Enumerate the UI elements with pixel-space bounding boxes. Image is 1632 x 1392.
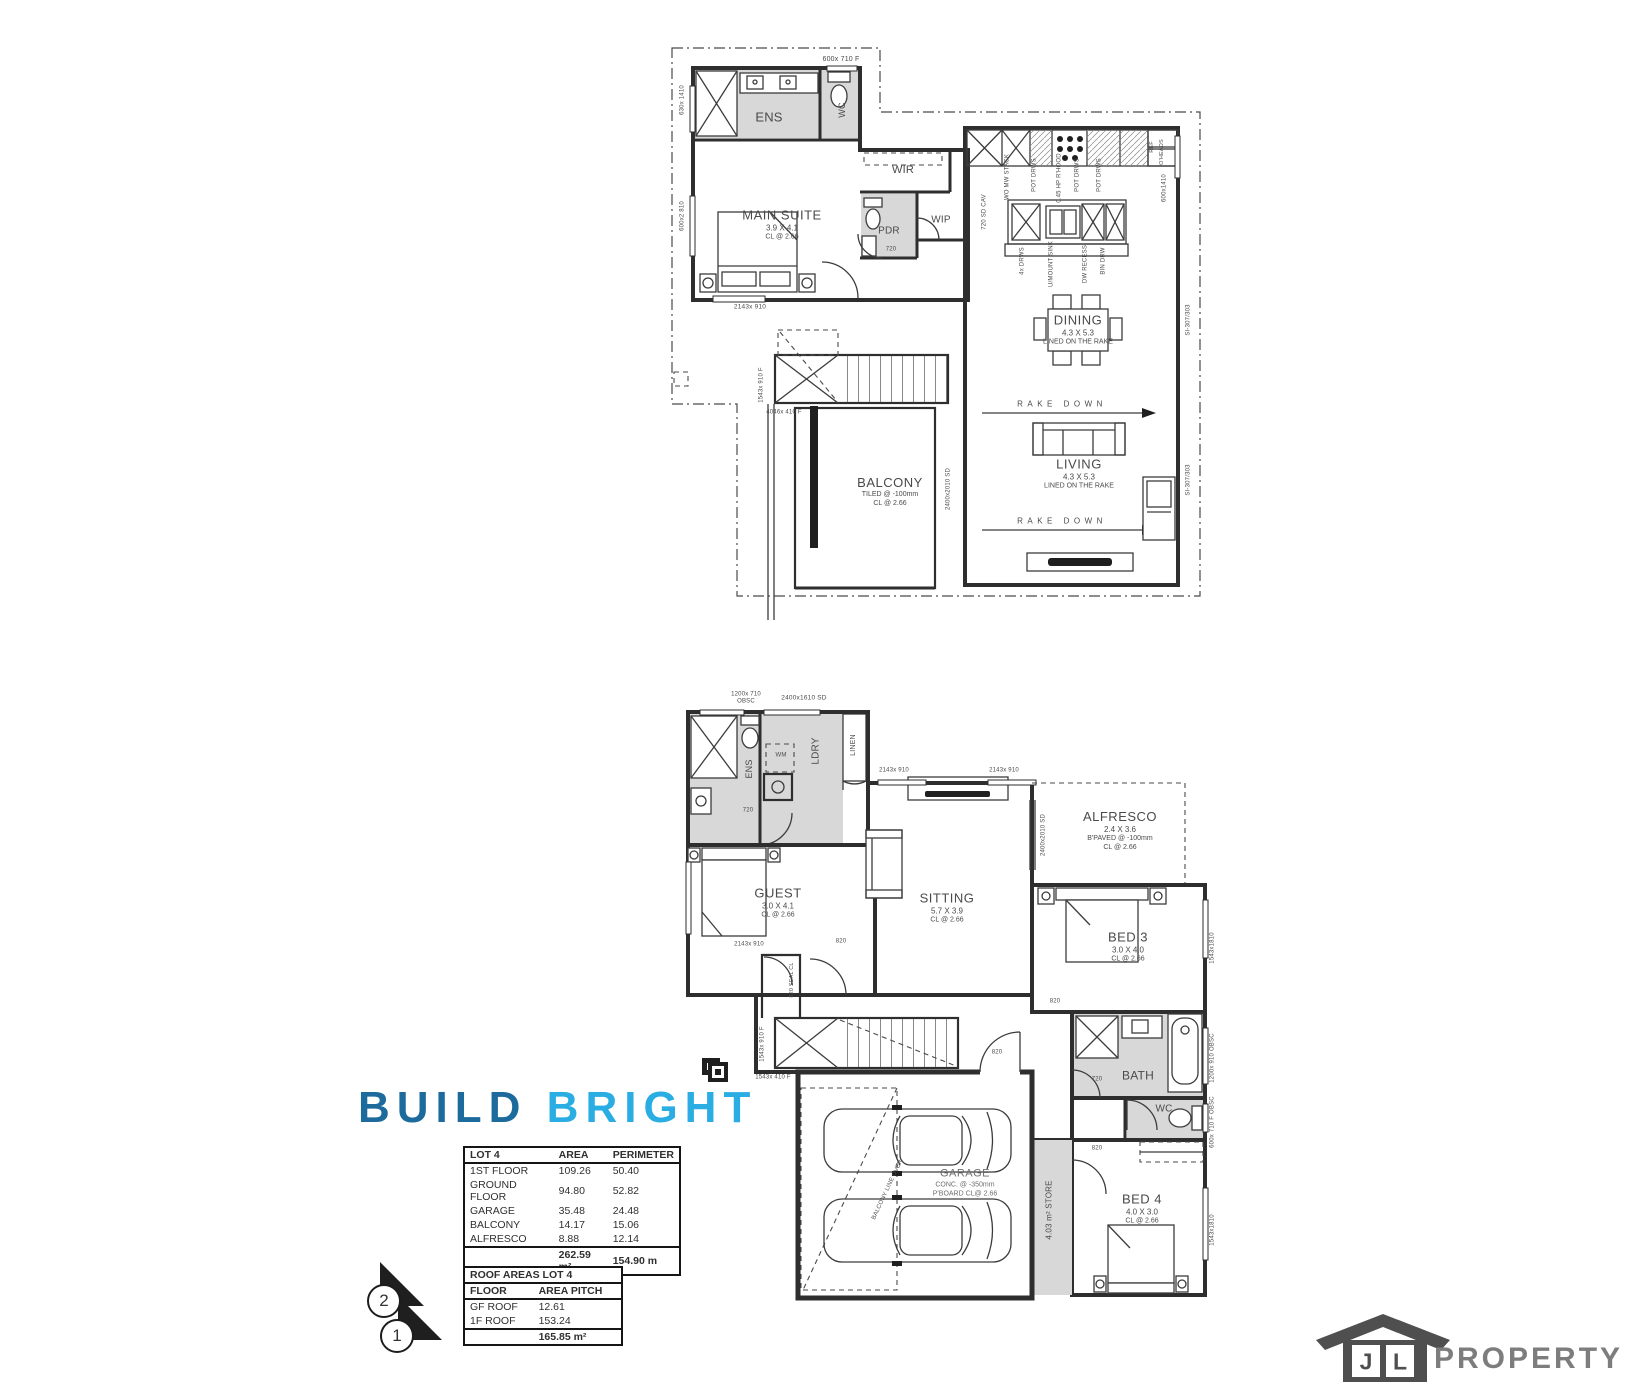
- window-code: 1543x 910 F: [760, 1026, 767, 1062]
- level-marker-1: 1: [380, 1319, 414, 1353]
- window-code: 1543x1810: [1210, 1214, 1217, 1246]
- door-width-label: 720: [1092, 1077, 1103, 1084]
- kitchen-label: POT DRWS: [1075, 158, 1082, 192]
- level-marker-2: 2: [367, 1284, 401, 1318]
- window-code: 2143x 910: [734, 303, 766, 310]
- kitchen-bench: [967, 130, 1178, 166]
- room-label-main-suite: MAIN SUITE 3.9 X 4.1 CL @ 2.66: [742, 208, 821, 243]
- room-label-wir: WIR: [892, 164, 914, 176]
- window-code: 600x1410: [1162, 174, 1169, 202]
- jl-property-house-icon: [1316, 1314, 1450, 1382]
- kitchen-label: REF: [1149, 141, 1155, 153]
- window-code: 1200x 910 OBSC: [1210, 1033, 1217, 1083]
- room-label-ldry: LDRY: [810, 737, 821, 764]
- pdr-toilet-icon: [864, 198, 882, 229]
- suite-door-arc: [822, 262, 858, 298]
- closet-note: 820 SEAL CL: [789, 962, 795, 997]
- bright-logo-word: BRIGHT: [547, 1083, 758, 1132]
- window-code: 1543x 410 F: [755, 1075, 791, 1082]
- table-row: BALCONY 14.17 15.06: [464, 1218, 680, 1232]
- jl-logo-letter-j: J: [1360, 1349, 1373, 1376]
- door-width-label: 820: [1050, 999, 1061, 1006]
- build-logo-word: BUILD: [358, 1083, 527, 1132]
- table-row: GF ROOF 12.61: [464, 1299, 622, 1314]
- island-label: U/MOUNT SINK: [1049, 241, 1056, 287]
- kitchen-label: 0.45 HP R'HOOD: [1057, 153, 1064, 203]
- window-code: 2143x 910: [879, 768, 909, 775]
- island-label: 4x DRWS: [1020, 247, 1027, 275]
- kitchen-label: WO MW STACK: [1005, 154, 1012, 200]
- table-row: 1ST FLOOR 109.26 50.40: [464, 1163, 680, 1178]
- linen-door-arc: [843, 781, 866, 790]
- area-pitch-column-header: AREA PITCH: [534, 1283, 622, 1299]
- window-code: SI-307/303: [1186, 464, 1193, 495]
- car-icon: [824, 1195, 1011, 1266]
- roof-area-table: ROOF AREAS LOT 4 FLOOR AREA PITCH GF ROO…: [463, 1266, 623, 1346]
- first-floor-plan: [672, 48, 1200, 620]
- door-width-label: 720: [886, 247, 897, 254]
- window-code: 2143x 910: [734, 942, 764, 949]
- sofa-icon: [1033, 423, 1125, 455]
- room-label-ens: ENS: [755, 111, 782, 126]
- kitchen-label: POT DRWS: [1097, 158, 1104, 192]
- pdr-basin-icon: [862, 236, 876, 256]
- kitchen-label: O'HEADS: [1159, 139, 1165, 165]
- basin-icon: [691, 788, 711, 814]
- roof-marker: [674, 372, 688, 386]
- washing-machine-label: WM: [775, 753, 786, 760]
- jl-logo-letter-l: L: [1393, 1349, 1407, 1376]
- rake-down-label: RAKE DOWN: [1017, 401, 1107, 410]
- window-code: 1543x1810: [1210, 932, 1217, 964]
- shower-icon: [696, 71, 737, 136]
- table-row: 1F ROOF 153.24: [464, 1314, 622, 1329]
- build-bright-icon: [708, 1062, 728, 1082]
- door-code: 720 SD CAV: [982, 194, 989, 230]
- window-code: 2143x 910: [989, 768, 1019, 775]
- area-column-header: AREA: [554, 1147, 608, 1163]
- room-label-bed4: BED 4 4.0 X 3.0 CL @ 2.66: [1122, 1192, 1162, 1227]
- tv-unit-icon: [1027, 553, 1133, 571]
- island-label: BIN DRW: [1101, 247, 1108, 274]
- roof-table-title: ROOF AREAS LOT 4: [464, 1267, 622, 1283]
- room-label-bed3: BED 3 3.0 X 4.0 CL @ 2.66: [1108, 930, 1148, 965]
- table-row: ALFRESCO 8.88 12.14: [464, 1232, 680, 1247]
- window-code: 2400x1610 SD: [781, 694, 826, 701]
- room-label-dining: DINING 4.3 X 5.3 LINED ON THE RAKE: [1043, 313, 1113, 348]
- window-code: 4046x 410 F: [766, 410, 802, 417]
- room-label-bath: BATH: [1122, 1069, 1154, 1082]
- window-code: 1543x 910 F: [759, 367, 766, 403]
- table-row: GROUND FLOOR 94.80 52.82: [464, 1178, 680, 1204]
- room-label-balcony: BALCONY TILED @ -100mm CL @ 2.66: [857, 475, 923, 509]
- window-code: 1200x 710 OBSC: [731, 691, 761, 704]
- stairs-first-floor: [775, 330, 948, 403]
- room-label-linen: LINEN: [850, 734, 858, 756]
- chaise-icon: [1143, 477, 1175, 540]
- car-icon: [824, 1105, 1011, 1176]
- perimeter-column-header: PERIMETER: [608, 1147, 680, 1163]
- room-label-guest: GUEST 3.0 X 4.1 CL @ 2.66: [754, 886, 801, 921]
- double-vanity-icon: [740, 73, 818, 93]
- sitting-sofa-icon: [866, 830, 902, 898]
- roof-total-value: 165.85 m²: [534, 1329, 622, 1345]
- guest-door-arc: [810, 959, 846, 995]
- area-table-title: LOT 4: [464, 1147, 554, 1163]
- room-label-wc: WC: [837, 102, 847, 117]
- door-width-label: 720: [743, 808, 754, 815]
- window-code: 600x 710 F: [822, 56, 859, 64]
- property-logo-word: PROPERTY: [1434, 1342, 1623, 1376]
- room-label-wc: WC: [1155, 1103, 1172, 1114]
- window-code: 630x 1410: [680, 85, 687, 115]
- window-code: 600x2 810: [680, 201, 687, 231]
- room-label-pdr: PDR: [878, 225, 900, 236]
- rake-down-label: RAKE DOWN: [1017, 518, 1107, 527]
- room-label-garage: GARAGE CONC. @ -350mm P'BOARD CL@ 2.66: [933, 1167, 997, 1198]
- room-label-living: LIVING 4.3 X 5.3 LINED ON THE RAKE: [1044, 457, 1114, 492]
- toilet-icon: [741, 716, 759, 748]
- room-label-wip: WIP: [931, 214, 951, 225]
- kitchen-label: POT DRWS: [1032, 158, 1039, 192]
- room-label-store: 4.03 m² STORE: [1046, 1180, 1055, 1239]
- door-width-label: 820: [836, 939, 847, 946]
- window-code: SI-307/303: [1186, 304, 1193, 335]
- lot-area-table: LOT 4 AREA PERIMETER 1ST FLOOR 109.26 50…: [463, 1146, 681, 1276]
- table-total-row: 165.85 m²: [464, 1329, 622, 1345]
- door-code: 2400x2010 SD: [946, 468, 953, 510]
- door-width-label: 820: [1092, 1146, 1103, 1153]
- table-row: GARAGE 35.48 24.48: [464, 1204, 680, 1218]
- floor-plan-sheet: ENS WC WIR PDR 720 WIP MAIN SUITE 3.9 X …: [0, 0, 1632, 1392]
- door-code: 2400x2010 SD: [1041, 814, 1048, 856]
- island-label: DW RECESS: [1083, 245, 1090, 283]
- room-label-sitting: SITTING 5.7 X 3.9 CL @ 2.66: [920, 891, 975, 926]
- window-code: 600x 710 F OBSC: [1210, 1096, 1217, 1148]
- balcony-walls: [768, 404, 935, 620]
- stairs-ground-floor: [775, 1018, 958, 1068]
- shower-icon: [691, 716, 737, 778]
- room-label-alfresco: ALFRESCO 2.4 X 3.6 B'PAVED @ -100mm CL @…: [1083, 809, 1157, 853]
- door-width-label: 820: [992, 1050, 1003, 1057]
- room-label-ens: ENS: [744, 759, 754, 778]
- build-bright-logo: BUILD BRIGHT: [358, 1086, 757, 1130]
- floor-column-header: FLOOR: [464, 1283, 534, 1299]
